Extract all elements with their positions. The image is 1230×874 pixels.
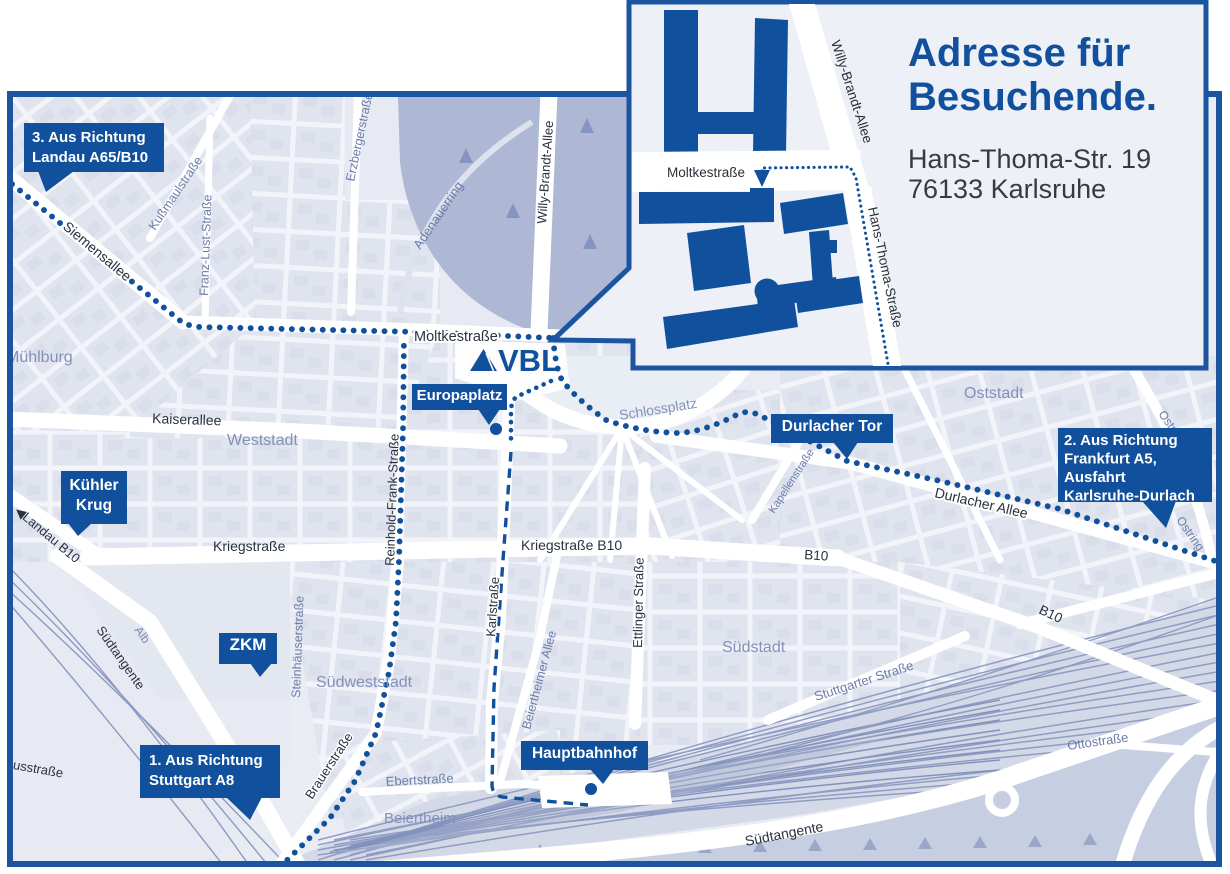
svg-text:Südstadt: Südstadt (722, 639, 786, 656)
svg-text:Landau A65/B10: Landau A65/B10 (32, 149, 148, 166)
svg-text:ZKM: ZKM (230, 635, 267, 654)
svg-text:Kaiserallee: Kaiserallee (152, 410, 222, 428)
svg-text:76133 Karlsruhe: 76133 Karlsruhe (908, 174, 1106, 204)
svg-text:Frankfurt A5,: Frankfurt A5, (1064, 450, 1157, 467)
svg-text:Besuchende.: Besuchende. (908, 75, 1157, 119)
svg-text:Ausfahrt: Ausfahrt (1064, 469, 1126, 486)
svg-text:Moltkestraße: Moltkestraße (414, 329, 498, 345)
svg-text:Moltkestraße: Moltkestraße (667, 165, 745, 180)
svg-text:Weststadt: Weststadt (227, 432, 298, 449)
svg-text:Kriegstraße: Kriegstraße (213, 538, 286, 554)
svg-text:Karlsruhe-Durlach: Karlsruhe-Durlach (1064, 487, 1195, 504)
svg-text:VBL: VBL (498, 343, 560, 378)
svg-text:Hauptbahnhof: Hauptbahnhof (532, 745, 638, 762)
svg-text:Kriegstraße B10: Kriegstraße B10 (521, 537, 622, 553)
svg-text:1. Aus Richtung: 1. Aus Richtung (149, 752, 263, 769)
svg-text:Oststadt: Oststadt (964, 385, 1024, 402)
svg-text:Hans-Thoma-Str. 19: Hans-Thoma-Str. 19 (908, 144, 1151, 174)
svg-text:Krug: Krug (76, 497, 112, 514)
svg-text:B10: B10 (804, 547, 829, 564)
svg-text:Kühler: Kühler (69, 477, 118, 494)
svg-text:Ettlinger Straße: Ettlinger Straße (630, 557, 647, 648)
svg-text:Mühlburg: Mühlburg (6, 349, 73, 366)
svg-text:Durlacher Tor: Durlacher Tor (782, 418, 883, 435)
svg-text:Stuttgart A8: Stuttgart A8 (149, 772, 234, 789)
svg-text:3. Aus Richtung: 3. Aus Richtung (32, 129, 146, 146)
svg-text:Südweststadt: Südweststadt (316, 674, 413, 691)
svg-text:Europaplatz: Europaplatz (417, 387, 503, 404)
svg-text:Beiertheim: Beiertheim (384, 810, 456, 827)
svg-text:2. Aus Richtung: 2. Aus Richtung (1064, 432, 1178, 449)
svg-text:Adresse für: Adresse für (908, 31, 1130, 75)
